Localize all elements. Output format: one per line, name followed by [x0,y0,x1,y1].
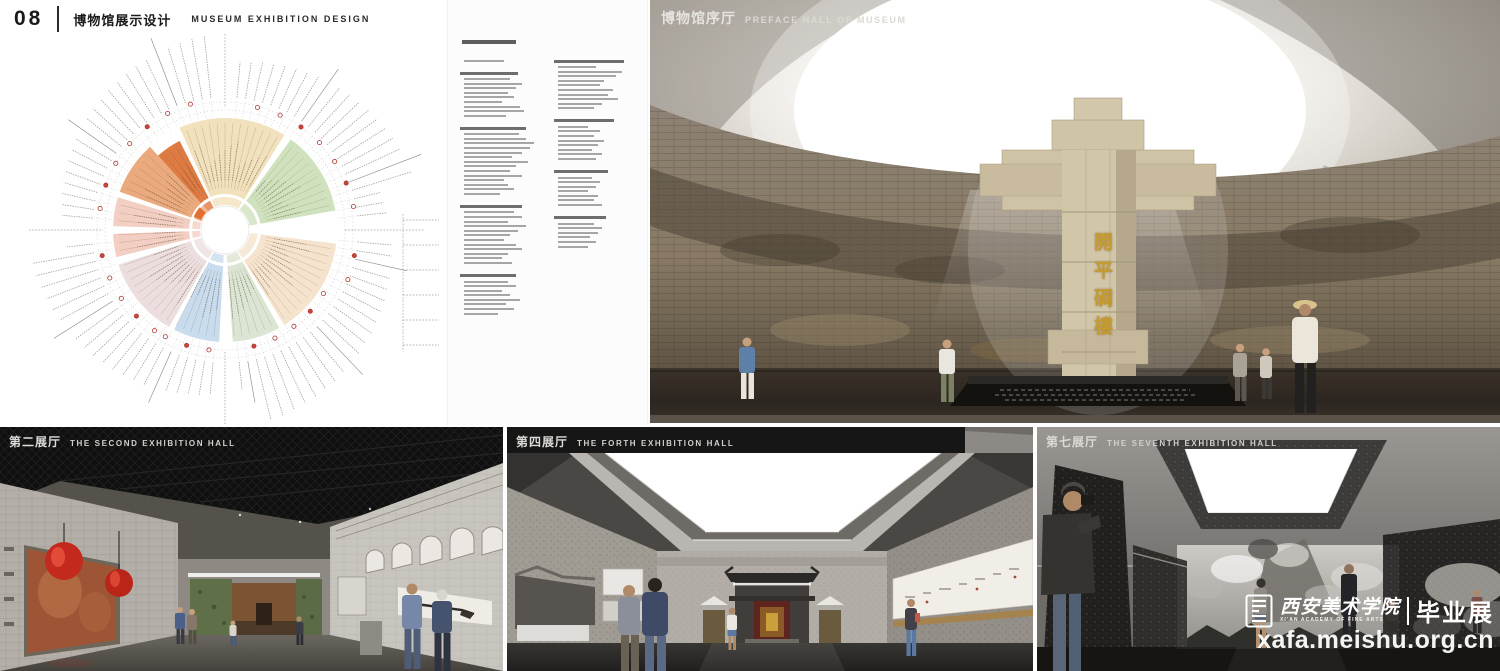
outline-column [554,60,638,325]
seventh-hall-label-zh: 第七展厅 [1046,433,1098,450]
second-hall-label-en: THE SECOND EXHIBITION HALL [70,439,236,448]
seventh-hall-label-en: THE SEVENTH EXHIBITION HALL [1107,439,1278,448]
fourth-hall-label-en: THE FORTH EXHIBITION HALL [577,439,734,448]
outline-columns [460,60,637,325]
outline-block [554,170,638,206]
watermark-divider [1407,597,1409,625]
outline-block [554,60,638,110]
outline-block [460,205,544,264]
preface-hall-render: 開平碉樓 博物馆序厅 PREFACE HALL OF MUSEUM [650,0,1500,423]
outline-block [554,119,638,160]
academy-logo-icon [1245,594,1273,628]
seventh-hall-render: 第七展厅 THE SEVENTH EXHIBITION HALL 西安美术学院 … [1037,427,1500,671]
watermark-url: xafa.meishu.org.cn [1245,626,1494,655]
monument-gold-inscription: 開平碉樓 [1088,232,1115,344]
outline-title-line [462,40,516,44]
seventh-hall-label: 第七展厅 THE SEVENTH EXHIBITION HALL [1046,433,1278,450]
second-hall-scene [0,427,503,671]
page-title-en: MUSEUM EXHIBITION DESIGN [191,14,370,24]
exhibition-name: 毕业展 [1416,593,1494,628]
sunburst-chart [3,28,447,426]
preface-label-en: PREFACE HALL OF MUSEUM [745,15,907,25]
fourth-hall-scene [507,427,1033,671]
exhibition-outline-panel [447,0,648,425]
preface-hall-label: 博物馆序厅 PREFACE HALL OF MUSEUM [661,8,907,28]
fourth-hall-label: 第四展厅 THE FORTH EXHIBITION HALL [516,433,734,450]
page-title: 博物馆展示设计 [73,10,171,29]
second-hall-render: 第二展厅 THE SECOND EXHIBITION HALL [0,427,503,671]
presentation-board: 08 博物馆展示设计 MUSEUM EXHIBITION DESIGN [0,0,1500,671]
second-hall-label-zh: 第二展厅 [9,433,61,450]
outline-block [554,216,638,247]
outline-block [460,60,544,62]
site-watermark: 西安美术学院 XI'AN ACADEMY OF FINE ARTS 毕业展 xa… [1245,593,1494,655]
second-hall-label: 第二展厅 THE SECOND EXHIBITION HALL [9,433,236,450]
radial-mindmap-diagram [3,28,447,426]
fourth-hall-label-zh: 第四展厅 [516,433,568,450]
fourth-hall-render: 第四展厅 THE FORTH EXHIBITION HALL [507,427,1033,671]
preface-hall-scene [650,0,1500,423]
academy-name-en: XI'AN ACADEMY OF FINE ARTS [1280,618,1384,623]
outline-block [460,72,544,117]
outline-column [460,60,544,325]
academy-name-zh: 西安美术学院 [1280,598,1400,617]
outline-block [460,274,544,315]
outline-block [460,127,544,195]
preface-label-zh: 博物馆序厅 [661,8,736,28]
